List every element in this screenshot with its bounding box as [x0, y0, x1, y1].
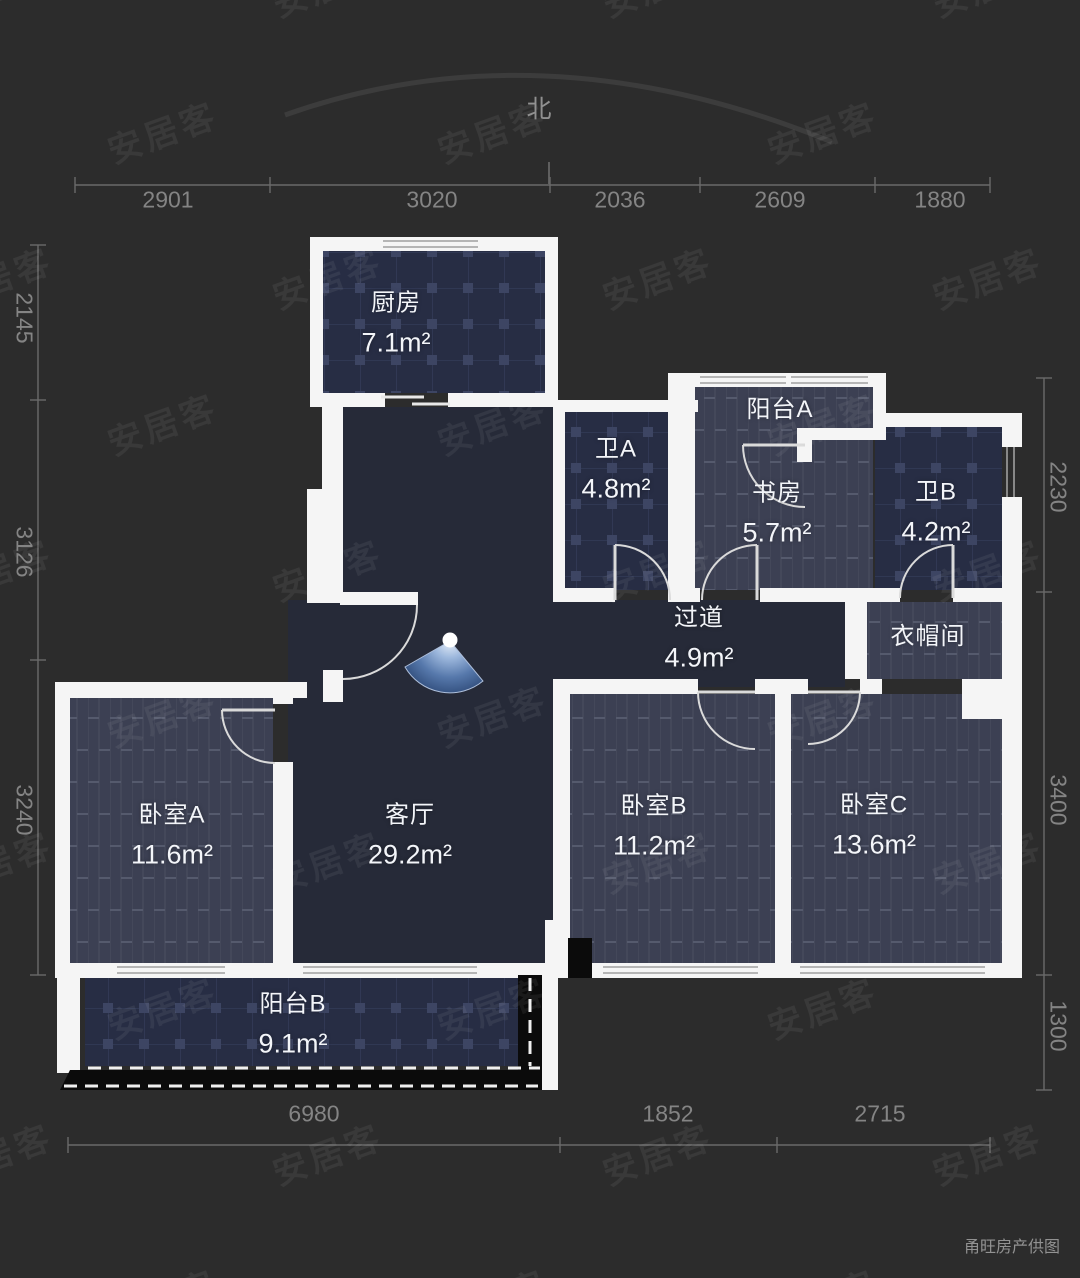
floorplan-svg — [0, 0, 1080, 1278]
compass-arc — [285, 75, 832, 184]
floorplan-screenshot: 安居客安居客安居客安居客安居客安居客安居客安居客安居客安居客安居客安居客安居客安… — [0, 0, 1080, 1278]
sliding-door — [381, 397, 450, 404]
